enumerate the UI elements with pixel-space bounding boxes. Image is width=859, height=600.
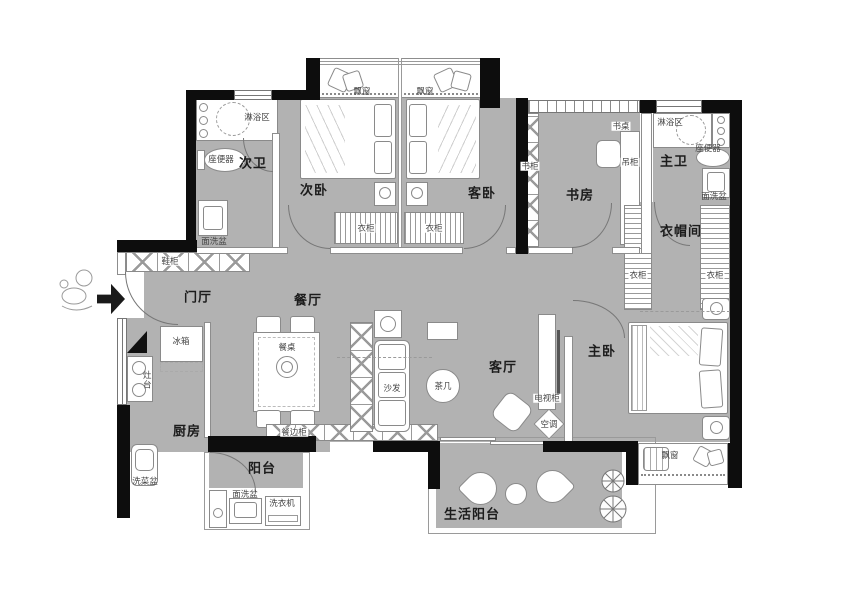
counter-knob-1 <box>717 116 725 124</box>
shower-knob-1 <box>199 103 208 112</box>
living-dash-line <box>337 357 432 358</box>
basin-master-inner <box>707 172 725 192</box>
study-chair <box>596 140 621 168</box>
closet-master-open-line <box>640 311 730 312</box>
bed-master-pillow-1 <box>699 327 724 366</box>
entrance-arrow-icon <box>97 281 125 317</box>
shower-knob-2 <box>199 116 208 125</box>
wall-bath-bed-divider <box>272 133 280 254</box>
wall-left-lower <box>117 405 130 518</box>
shower-label-secondary: 淋浴区 <box>244 113 270 122</box>
wall-study-closet <box>641 113 652 254</box>
wardrobe-secondary-label: 衣柜 <box>356 224 375 233</box>
nightstand-guest-deco <box>411 187 423 199</box>
stove-label: 灶台 <box>143 371 152 390</box>
closet-wardrobe-right-label: 衣柜 <box>705 271 724 280</box>
wall-bedrooms-south-c <box>506 247 516 254</box>
bed-master-pillow-2 <box>699 369 724 408</box>
ac-label: 空调 <box>539 420 558 429</box>
room-label-secondary-bedroom: 次卧 <box>300 184 328 197</box>
closet-wardrobe-right <box>700 205 730 310</box>
room-label-master-bath: 主卫 <box>660 155 688 168</box>
nightstand-master-top-deco <box>710 302 723 315</box>
room-label-study: 书房 <box>566 189 594 202</box>
nightstand-master-bottom-deco <box>710 421 723 434</box>
balcony-basin-label: 面洗盆 <box>232 490 258 499</box>
wall-study-south-a <box>528 247 573 254</box>
shower-knob-3 <box>199 129 208 138</box>
room-label-life-balcony: 生活阳台 <box>444 508 500 521</box>
room-label-dining: 餐厅 <box>294 294 322 307</box>
shoe-cabinet-label: 鞋柜 <box>160 257 179 266</box>
bed-secondary-fold <box>305 105 345 173</box>
kitchen-sink-label: 洗菜盆 <box>132 477 158 486</box>
window-master-bath <box>656 100 702 113</box>
bay-right-label: 飘窗 <box>416 87 433 96</box>
washer-panel <box>268 515 298 522</box>
bed-master-runner <box>631 325 647 411</box>
closet-wardrobe-left-label: 衣柜 <box>628 271 647 280</box>
master-bay-label: 飘窗 <box>661 451 678 460</box>
bed-master-blanket <box>650 326 698 356</box>
shoe-cabinet <box>126 252 250 272</box>
study-desk-label: 书桌 <box>611 122 630 131</box>
window-study-top <box>528 100 640 113</box>
bookcase-label: 书柜 <box>520 162 539 171</box>
wall-right <box>730 100 742 455</box>
bed-secondary-pillow-1 <box>374 104 392 137</box>
bed-guest-fold <box>438 105 476 173</box>
kitchen-sink-inner <box>135 449 154 471</box>
bay-left-label: 飘窗 <box>353 87 370 96</box>
basin-label-secondary: 面洗盆 <box>201 237 227 246</box>
wall-guest-study <box>516 98 528 254</box>
sideboard-label: 餐边柜 <box>280 428 308 437</box>
wall-kitchen-dining <box>204 322 211 438</box>
basin-secondary-inner <box>203 206 223 230</box>
wall-foyer-jog <box>117 240 197 252</box>
balcony-corner-knob <box>213 508 223 518</box>
window-kitchen-left <box>117 318 127 405</box>
life-balcony-slider-a <box>440 437 496 441</box>
side-table <box>427 322 458 340</box>
room-label-foyer: 门厅 <box>184 291 212 304</box>
pillar-bay-left <box>306 58 320 100</box>
wall-bedroom-divider <box>398 58 402 248</box>
wall-living-master <box>564 336 573 442</box>
wall-kitchen-balcony <box>208 436 316 452</box>
tv-cabinet-label: 电视柜 <box>533 394 561 403</box>
sofa-label: 沙发 <box>383 384 400 393</box>
person-sketch-icon <box>56 266 100 318</box>
bed-guest-pillow-2 <box>409 141 427 174</box>
pillar-master-bay-left <box>626 441 638 485</box>
nightstand-secondary-deco <box>379 187 391 199</box>
plants-icon <box>596 468 630 528</box>
wall-study-south-b <box>612 247 640 254</box>
basin-label-master: 面洗盆 <box>701 192 727 201</box>
balcony-round-table <box>505 483 527 505</box>
room-label-secondary-bath: 次卫 <box>239 157 267 170</box>
kitchen-counter-dash <box>160 362 203 372</box>
wall-left-upper <box>186 90 196 252</box>
floor-plan: 飘窗 飘窗 淋浴区 座便器 次卫 <box>0 0 859 600</box>
wall-balcony-top-right <box>543 441 635 452</box>
window-secondary-bath <box>234 90 272 100</box>
room-label-master: 主卧 <box>588 345 616 358</box>
pillar-master-bay-right <box>728 443 742 488</box>
wall-bedrooms-south-b <box>330 247 463 254</box>
room-label-living: 客厅 <box>489 361 517 374</box>
tv-screen <box>557 330 560 394</box>
washer-label: 洗衣机 <box>269 499 295 508</box>
fridge-label: 冰箱 <box>172 337 189 346</box>
toilet-label-master: 座便器 <box>695 144 721 153</box>
dining-table-label: 餐桌 <box>278 343 295 352</box>
bay-window-top-lines <box>320 61 480 65</box>
hanging-cabinet-label: 吊柜 <box>620 158 639 167</box>
balcony-basin-inner <box>234 502 257 518</box>
wardrobe-guest-label: 衣柜 <box>424 224 443 233</box>
pillar-study-bath <box>640 100 656 113</box>
bed-guest-pillow-1 <box>409 104 427 137</box>
sofa-cushion-3 <box>378 400 406 426</box>
room-label-small-balcony: 阳台 <box>248 462 276 475</box>
wall-bedrooms-south-a <box>196 247 288 254</box>
toilet-label-secondary: 座便器 <box>208 155 234 164</box>
counter-knob-2 <box>717 127 725 135</box>
room-label-guest-bedroom: 客卧 <box>468 187 496 200</box>
wall-living-south-b <box>428 441 440 489</box>
room-label-closet: 衣帽间 <box>660 225 702 238</box>
room-label-kitchen: 厨房 <box>173 425 201 438</box>
pillar-bay-right <box>480 58 500 108</box>
floor-lamp-circle <box>380 316 396 332</box>
tea-table-label: 茶几 <box>434 382 451 391</box>
master-bay-curtain <box>641 473 725 476</box>
sofa-side-cabinet <box>350 322 373 432</box>
shower-label-master: 淋浴区 <box>657 118 683 127</box>
toilet-tank-secondary <box>197 150 205 170</box>
life-balcony-slider-b <box>490 441 546 445</box>
bed-secondary-pillow-2 <box>374 141 392 174</box>
